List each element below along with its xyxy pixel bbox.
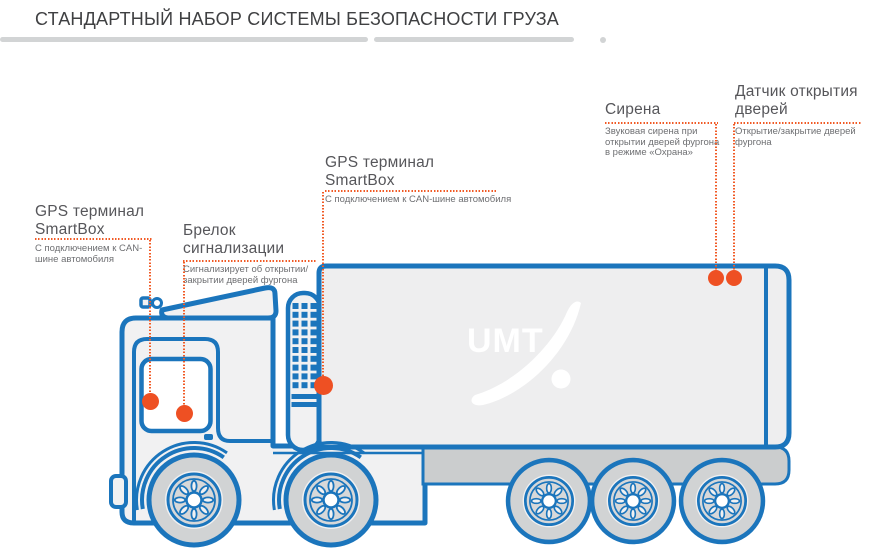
wheel-trailer-1 [508, 460, 590, 542]
marker-dot-door-sensor [726, 270, 742, 286]
desc-line: открытии дверей фургона [605, 137, 719, 148]
heading-line: GPS терминал [35, 203, 144, 220]
heading-line: сигнализации [183, 240, 284, 257]
marker-dot-siren [708, 270, 724, 286]
divider-dot [600, 37, 606, 43]
label-connector-line [149, 240, 151, 393]
desc-line: Открытие/закрытие дверей [735, 126, 856, 137]
label-description: С подключением к CAN- шине автомобиля [35, 244, 142, 265]
label-underline [183, 260, 317, 262]
wheel-front-2 [286, 455, 376, 545]
desc-line: Сигнализирует об открытии/ [183, 264, 308, 275]
heading-line: Брелок [183, 222, 236, 239]
divider-bar-1 [0, 37, 368, 42]
page-title: СТАНДАРТНЫЙ НАБОР СИСТЕМЫ БЕЗОПАСНОСТИ Г… [35, 9, 559, 30]
marker-dot-gps-chassis [314, 376, 333, 395]
label-description: Звуковая сирена при открытии дверей фург… [605, 127, 719, 159]
label-underline [734, 122, 862, 124]
label-heading: Датчик открытия дверей [735, 83, 858, 119]
desc-line: в режиме «Охрана» [605, 147, 693, 158]
label-connector-line [715, 124, 717, 271]
label-underline [35, 238, 152, 240]
heading-line: SmartBox [35, 221, 105, 238]
label-gps-terminal-cab: GPS терминал SmartBox [35, 203, 144, 239]
desc-line: фургона [735, 137, 772, 148]
desc-line: Звуковая сирена при [605, 126, 697, 137]
desc-line: шине автомобиля [35, 254, 114, 265]
roof-mirror-mounts [141, 298, 162, 308]
divider-bar-2 [374, 37, 574, 42]
marker-dot-keyfob [176, 405, 193, 422]
grille-column [288, 293, 320, 450]
label-underline [605, 122, 718, 124]
label-underline [325, 190, 497, 192]
label-connector-line [733, 124, 735, 271]
desc-line: закрытии дверей фургона [183, 275, 298, 286]
heading-line: GPS терминал [325, 154, 434, 171]
label-connector-line [183, 262, 185, 406]
marker-dot-gps-cab [142, 393, 159, 410]
logo-dot [552, 370, 571, 389]
label-description: С подключением к CAN-шине автомобиля [325, 195, 511, 206]
heading-line: Датчик открытия [735, 83, 858, 100]
cab-door-handle [204, 434, 213, 440]
cab-front-step [111, 476, 126, 507]
label-description: Сигнализирует об открытии/ закрытии двер… [183, 265, 308, 286]
heading-line: Сирена [605, 101, 660, 118]
label-gps-terminal-chassis: GPS терминал SmartBox [325, 154, 434, 190]
cab-wind-deflector [162, 288, 276, 318]
trailer-logo-text: UMT [467, 322, 544, 360]
wheel-front-1 [149, 455, 239, 545]
label-heading: Брелок сигнализации [183, 222, 284, 258]
label-door-sensor: Датчик открытия дверей [735, 83, 858, 119]
label-connector-line [322, 192, 324, 376]
label-alarm-keyfob: Брелок сигнализации [183, 222, 284, 258]
label-heading: GPS терминал SmartBox [325, 154, 434, 190]
heading-line: SmartBox [325, 172, 395, 189]
label-heading: GPS терминал SmartBox [35, 203, 144, 239]
wheel-trailer-3 [681, 460, 763, 542]
desc-line: С подключением к CAN- [35, 243, 142, 254]
label-siren: Сирена [605, 101, 660, 119]
label-description: Открытие/закрытие дверей фургона [735, 127, 856, 148]
heading-line: дверей [735, 101, 788, 118]
desc-line: С подключением к CAN-шине автомобиля [325, 194, 511, 205]
label-heading: Сирена [605, 101, 660, 119]
wheel-trailer-2 [592, 460, 674, 542]
